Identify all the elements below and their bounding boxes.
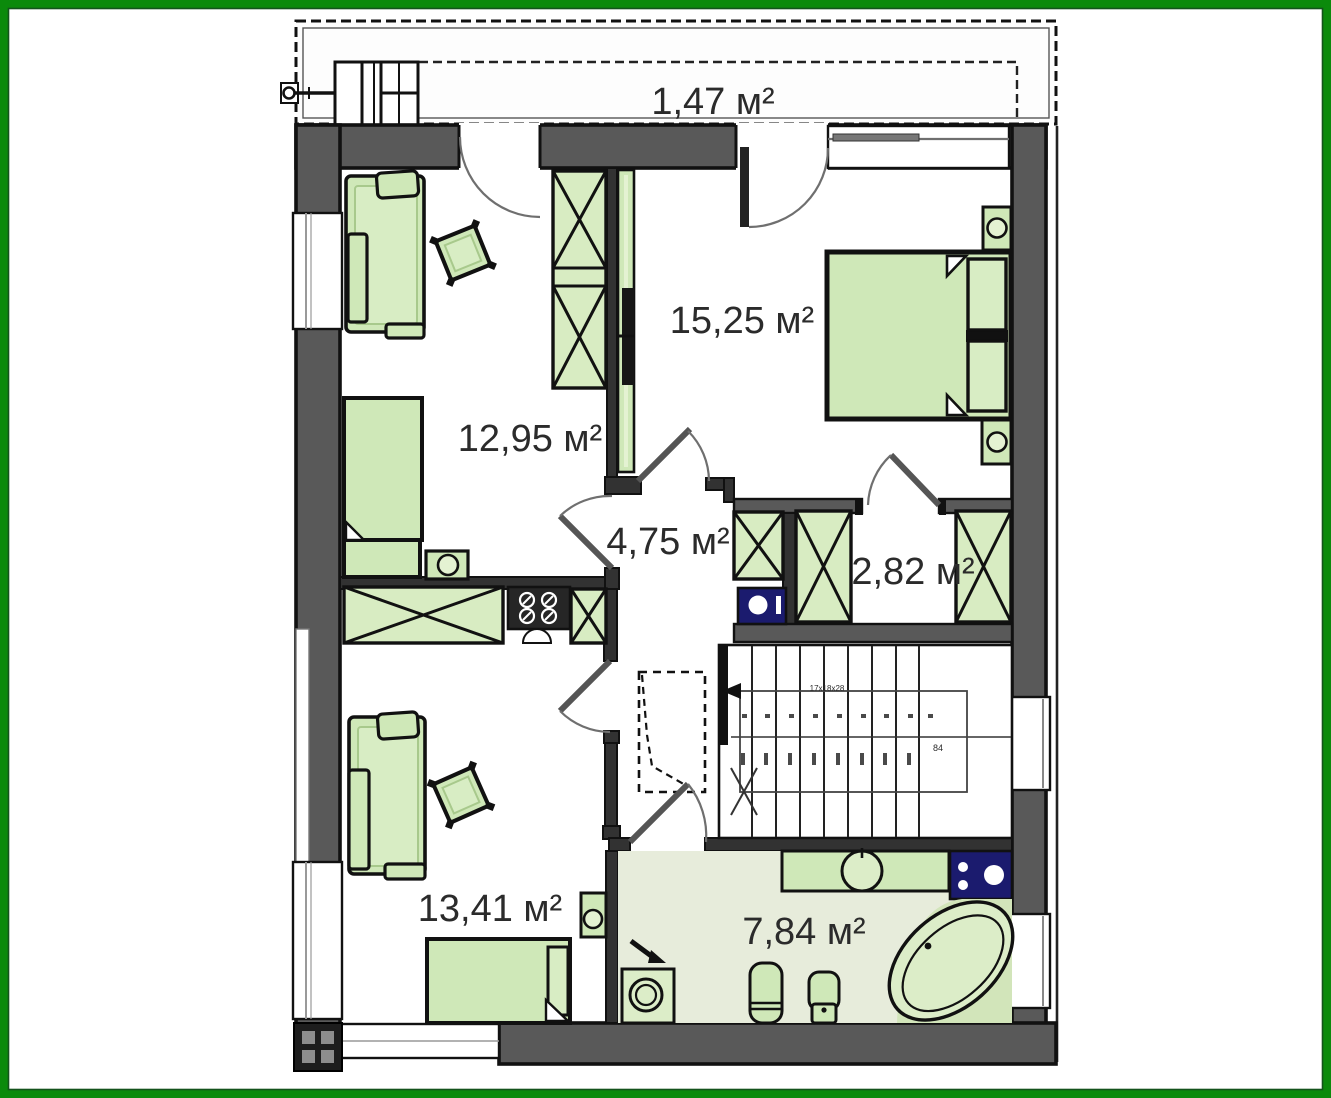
svg-text:4,75 м²: 4,75 м² [606, 521, 729, 563]
svg-text:15,25 м²: 15,25 м² [670, 300, 814, 342]
svg-text:1,47 м²: 1,47 м² [651, 81, 774, 123]
svg-text:17x18x28: 17x18x28 [810, 684, 845, 693]
svg-text:13,41 м²: 13,41 м² [418, 888, 562, 930]
svg-text:12,95 м²: 12,95 м² [458, 418, 602, 460]
svg-text:7,84 м²: 7,84 м² [742, 911, 865, 953]
svg-text:84: 84 [933, 743, 943, 753]
svg-text:2,82 м²: 2,82 м² [851, 551, 974, 593]
